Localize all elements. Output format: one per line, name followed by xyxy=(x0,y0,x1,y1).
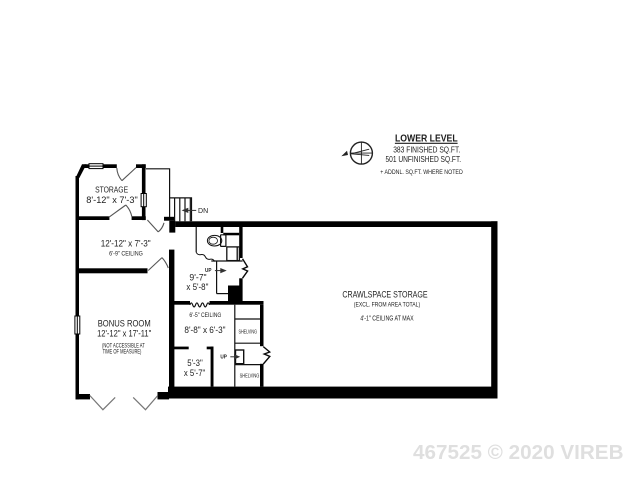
svg-text:x 5'-8": x 5'-8" xyxy=(186,282,208,292)
svg-text:12'-12" x 17'-11": 12'-12" x 17'-11" xyxy=(97,327,151,338)
svg-text:x 5'-7": x 5'-7" xyxy=(184,368,205,378)
svg-text:6'-9" CEILING: 6'-9" CEILING xyxy=(109,251,143,258)
svg-text:467525 © 2020 VIREB: 467525 © 2020 VIREB xyxy=(413,441,624,464)
svg-text:501 UNFINISHED SQ.FT.: 501 UNFINISHED SQ.FT. xyxy=(386,154,462,164)
svg-text:8'-8" x 6'-3": 8'-8" x 6'-3" xyxy=(184,324,225,335)
svg-text:TIME OF MEASURE): TIME OF MEASURE) xyxy=(103,349,142,355)
svg-text:5'-3": 5'-3" xyxy=(187,358,203,368)
svg-text:+ ADDNL. SQ.FT. WHERE NOTED: + ADDNL. SQ.FT. WHERE NOTED xyxy=(380,169,463,176)
svg-text:4'-1" CEILING AT MAX: 4'-1" CEILING AT MAX xyxy=(360,315,414,322)
svg-text:12'-12" x 7'-3": 12'-12" x 7'-3" xyxy=(101,237,151,248)
svg-text:6'-5" CEILING: 6'-5" CEILING xyxy=(189,312,221,319)
svg-text:9'-7": 9'-7" xyxy=(189,272,206,282)
svg-text:SHELVING: SHELVING xyxy=(240,373,260,379)
svg-text:DN: DN xyxy=(198,208,208,215)
svg-text:UP: UP xyxy=(220,355,227,361)
svg-text:STORAGE: STORAGE xyxy=(95,185,128,195)
svg-text:(EXCL. FROM AREA TOTAL): (EXCL. FROM AREA TOTAL) xyxy=(354,301,420,308)
svg-text:SHELVING: SHELVING xyxy=(239,330,258,336)
svg-text:8'-12" x 7'-3": 8'-12" x 7'-3" xyxy=(86,195,138,205)
svg-text:CRAWLSPACE STORAGE: CRAWLSPACE STORAGE xyxy=(342,288,427,299)
